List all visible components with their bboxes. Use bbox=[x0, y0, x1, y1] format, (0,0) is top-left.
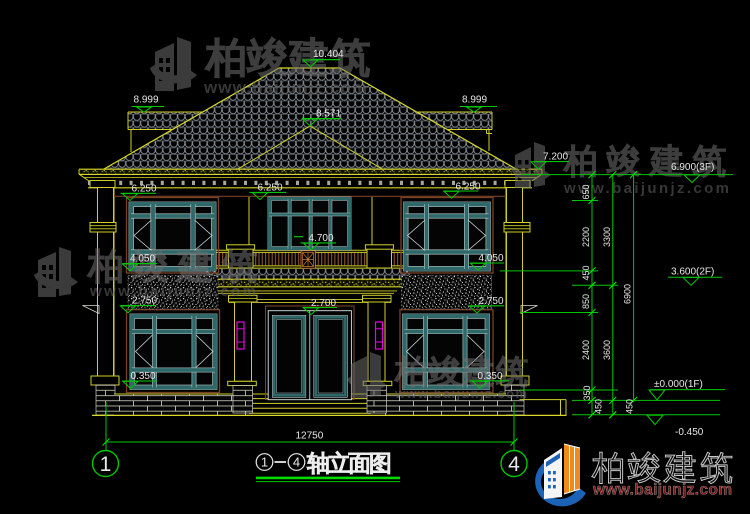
svg-text:1: 1 bbox=[100, 453, 112, 476]
svg-text:850: 850 bbox=[581, 294, 591, 309]
svg-text:6900: 6900 bbox=[623, 284, 633, 304]
svg-text:www.baijunjz.com: www.baijunjz.com bbox=[203, 78, 367, 97]
svg-text:10.404: 10.404 bbox=[313, 49, 344, 60]
svg-text:www.baijunjz.com: www.baijunjz.com bbox=[592, 482, 732, 499]
svg-text:8.999: 8.999 bbox=[134, 95, 159, 106]
svg-text:3600: 3600 bbox=[602, 340, 612, 360]
svg-text:2.750: 2.750 bbox=[132, 296, 157, 307]
svg-text:2200: 2200 bbox=[581, 227, 591, 247]
svg-text:12750: 12750 bbox=[296, 431, 324, 442]
svg-text:7.200: 7.200 bbox=[543, 152, 568, 163]
svg-text:650: 650 bbox=[581, 184, 591, 199]
svg-text:0.350: 0.350 bbox=[131, 371, 156, 382]
svg-text:www.baijunjz.com: www.baijunjz.com bbox=[394, 386, 527, 401]
svg-text:2.750: 2.750 bbox=[479, 296, 504, 307]
svg-text:-0.450: -0.450 bbox=[675, 427, 704, 438]
svg-text:450: 450 bbox=[581, 265, 591, 280]
svg-text:8.999: 8.999 bbox=[462, 95, 487, 106]
svg-text:1: 1 bbox=[261, 455, 268, 470]
svg-text:4.050: 4.050 bbox=[479, 253, 504, 264]
svg-text:2400: 2400 bbox=[581, 340, 591, 360]
svg-text:450: 450 bbox=[594, 399, 604, 414]
svg-text:350: 350 bbox=[582, 385, 592, 400]
svg-text:3.600(2F): 3.600(2F) bbox=[671, 267, 714, 278]
svg-text:6.900(3F): 6.900(3F) bbox=[671, 162, 714, 173]
svg-text:4.050: 4.050 bbox=[130, 254, 155, 265]
svg-text:450: 450 bbox=[624, 399, 634, 414]
svg-text:4: 4 bbox=[293, 455, 300, 470]
svg-text:8.571: 8.571 bbox=[316, 109, 341, 120]
svg-text:3300: 3300 bbox=[602, 227, 612, 247]
svg-text:±0.000(1F): ±0.000(1F) bbox=[654, 379, 703, 390]
svg-text:4: 4 bbox=[508, 453, 520, 476]
